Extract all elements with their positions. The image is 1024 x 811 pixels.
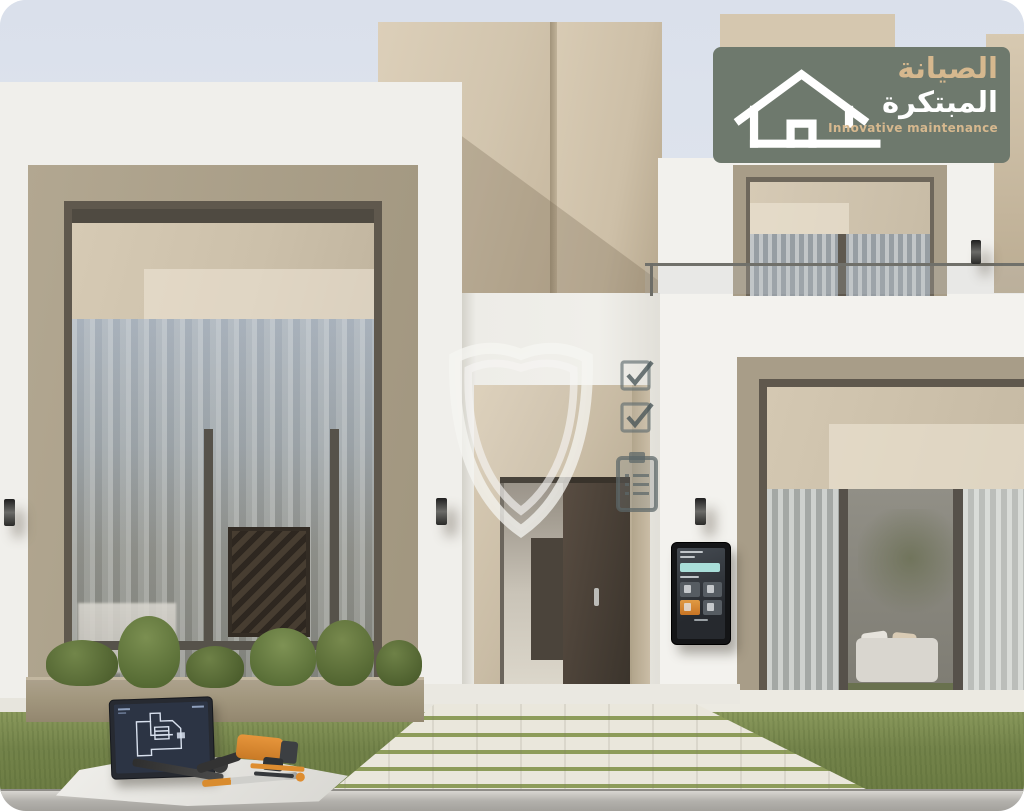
logo-arabic-line1: الصيانة	[828, 51, 998, 85]
brand-logo: الصيانة المبتكرة Innovative maintenance	[713, 47, 1010, 163]
glass-door-frame	[953, 489, 963, 692]
logo-arabic-line2: المبتكرة	[828, 85, 998, 119]
railing-handrail	[645, 263, 1024, 266]
status-text	[680, 556, 695, 558]
recess-side-face	[632, 385, 650, 690]
status-text	[680, 551, 703, 553]
villa-render: الصيانة المبتكرة Innovative maintenance	[0, 0, 1024, 811]
shrub	[186, 646, 244, 688]
notification-bar	[680, 563, 720, 572]
panel-tile	[680, 582, 700, 597]
right-window-glass	[767, 489, 1024, 692]
smart-home-panel	[671, 542, 731, 645]
panel-tile	[703, 600, 723, 615]
floor-plan-blueprint	[114, 701, 210, 770]
left-window-glass	[72, 319, 374, 677]
front-door	[563, 477, 630, 686]
shade-highlight	[750, 203, 849, 234]
tile-grid	[680, 582, 722, 615]
sofa	[856, 638, 938, 682]
railing-post	[650, 263, 653, 296]
right-window-content	[767, 387, 1024, 692]
logo-tagline: Innovative maintenance	[828, 121, 998, 135]
balcony-glass-railing	[645, 266, 1024, 294]
clamp-tool	[249, 763, 304, 785]
spiky-plant	[250, 628, 316, 686]
door-jamb	[500, 477, 504, 686]
curtain-folds	[963, 489, 1024, 692]
window-mullion	[204, 429, 213, 677]
shade-highlight	[144, 269, 374, 319]
leafy-plant	[118, 616, 180, 688]
shade-housing	[72, 209, 374, 223]
left-roller-shade	[72, 223, 374, 319]
logo-text-block: الصيانة المبتكرة Innovative maintenance	[828, 51, 998, 135]
right-living-room-window	[737, 357, 1024, 710]
glass-door-frame	[839, 489, 848, 692]
panel-tile	[703, 582, 723, 597]
door-handle	[594, 588, 599, 606]
clamp-bar	[254, 771, 294, 778]
balcony-roller-shade	[750, 182, 930, 234]
left-window-content	[72, 209, 374, 677]
right-roller-shade	[767, 387, 1024, 489]
courtyard-tree-view	[858, 509, 953, 619]
curtain-folds	[767, 489, 839, 692]
shrub	[376, 640, 422, 686]
shrub	[46, 640, 118, 686]
glass-door-pane	[848, 489, 953, 692]
wall-sconce-light	[4, 499, 15, 526]
shade-highlight	[829, 424, 1024, 489]
leafy-plant	[316, 620, 374, 686]
wood-slat-artwork	[228, 527, 310, 637]
label-text	[680, 576, 699, 578]
panel-logo	[694, 619, 708, 621]
curtain-panel-right	[963, 489, 1024, 692]
wall-sconce-light	[971, 240, 981, 264]
wall-sconce-light	[436, 498, 447, 525]
wall-sconce-light	[695, 498, 706, 525]
left-panoramic-window	[28, 165, 418, 677]
panel-tile-alert	[680, 600, 700, 615]
entrance-porch-slab	[420, 684, 740, 704]
door-head-frame	[500, 477, 630, 483]
curtain-panel-left	[767, 489, 839, 692]
smart-panel-screen	[677, 548, 725, 639]
